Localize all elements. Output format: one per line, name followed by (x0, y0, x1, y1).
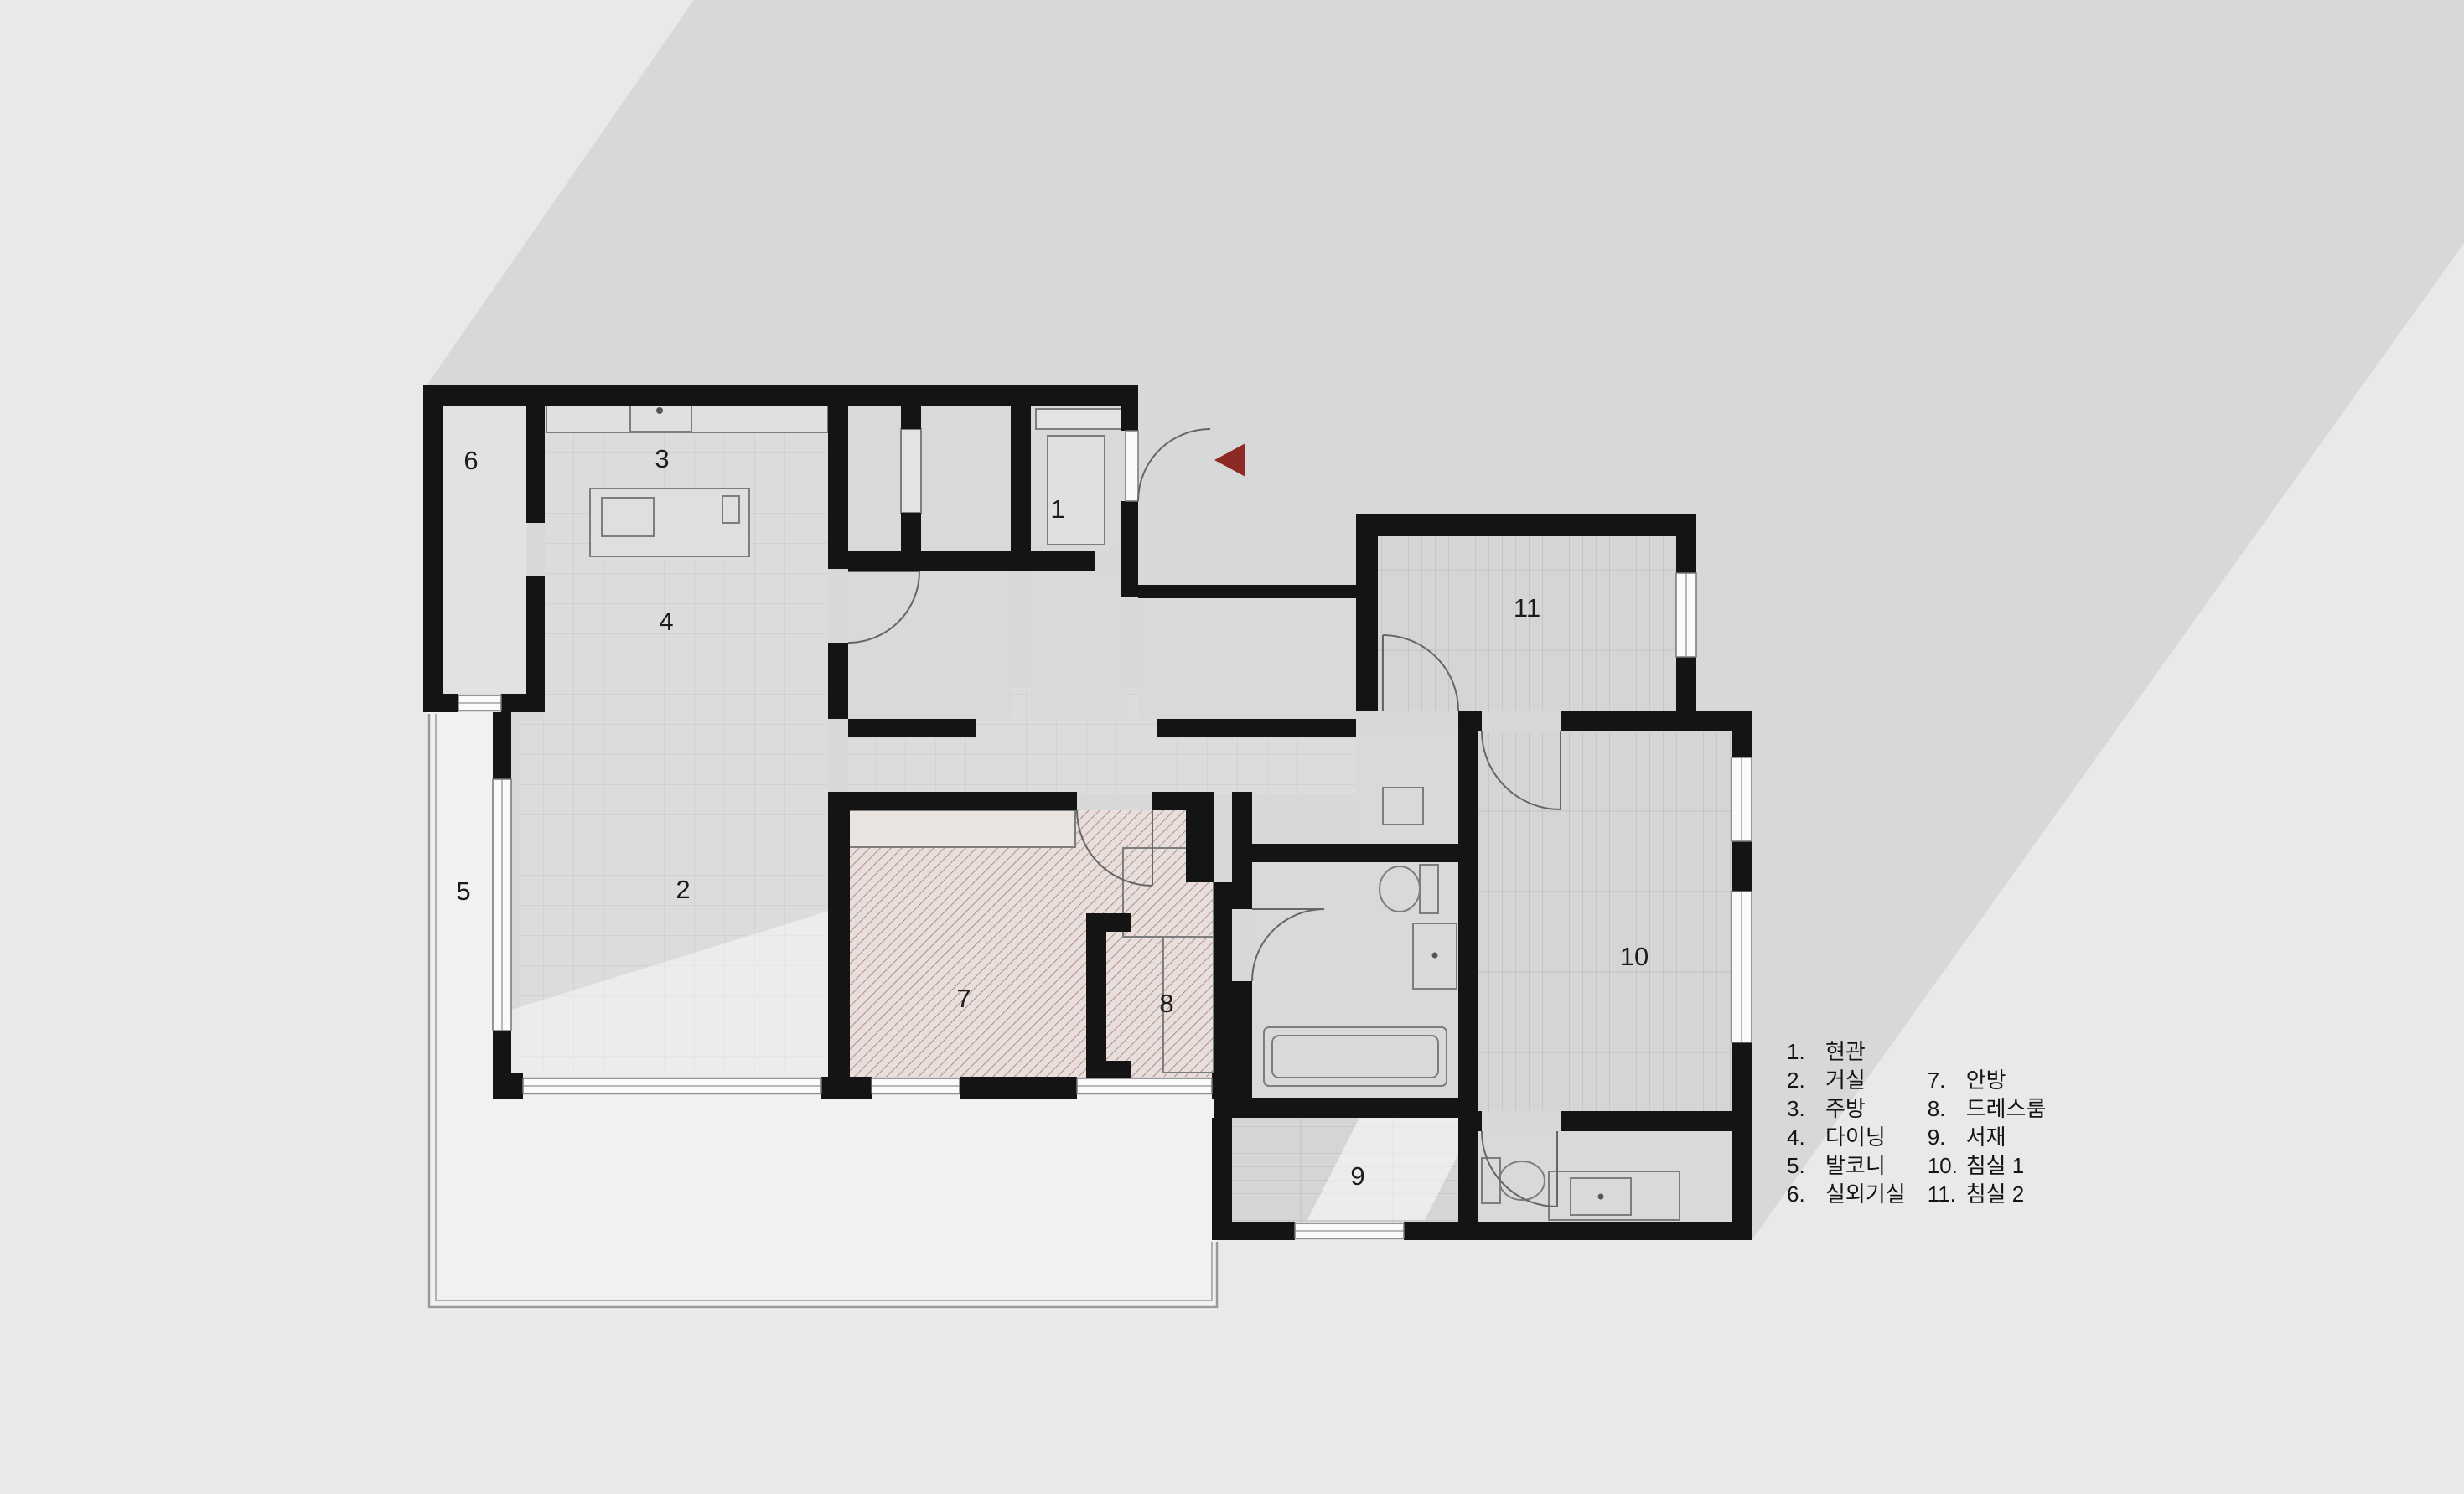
room-3-floor (545, 432, 828, 719)
room-label-7: 7 (956, 984, 971, 1013)
room-label-2: 2 (676, 875, 690, 904)
vanity-1-faucet (1432, 953, 1438, 959)
floor-plan-page: 1234567891011 1.현관2.거실3.주방4.다이닝5.발코니6.실외… (0, 0, 2464, 1494)
legend-item: 2.거실 (1787, 1066, 1906, 1094)
wall (1458, 711, 1482, 731)
legend-item-number: 1. (1787, 1037, 1825, 1066)
room-7-8-floor-hatched (848, 810, 1214, 1077)
wall (526, 576, 545, 712)
wall (1121, 501, 1138, 523)
wall (1157, 719, 1356, 737)
master-bath-floor (1252, 862, 1458, 1098)
wall (526, 406, 545, 523)
wall (848, 719, 976, 737)
legend-item-number: 7. (1928, 1066, 1966, 1094)
legend-item-number: 2. (1787, 1066, 1825, 1094)
room-label-11: 11 (1514, 593, 1540, 623)
legend-item: 1.현관 (1787, 1037, 1906, 1066)
legend-item-number: 5. (1787, 1151, 1825, 1180)
vanity-2-faucet (1598, 1194, 1604, 1200)
wall-shaft (1186, 792, 1214, 882)
room-label-6: 6 (463, 446, 478, 475)
wall (501, 694, 545, 712)
utility-niche (901, 429, 921, 513)
wall (1356, 514, 1696, 536)
wall (1458, 1111, 1482, 1131)
wall (828, 643, 848, 719)
wall (1561, 1111, 1752, 1131)
wall (1121, 523, 1138, 597)
legend-item: 10.침실 1 (1928, 1151, 2047, 1180)
legend-item-number: 9. (1928, 1123, 1966, 1151)
wall (423, 385, 443, 712)
wall (1252, 844, 1458, 862)
wall (1458, 731, 1478, 1222)
room-11-floor (1378, 536, 1676, 711)
legend-item-label: 거실 (1825, 1066, 1866, 1094)
wall (1232, 1098, 1458, 1118)
legend-item-label: 발코니 (1825, 1151, 1886, 1180)
wall (1732, 731, 1752, 757)
legend-item-label: 드레스룸 (1966, 1094, 2047, 1123)
legend-item: 3.주방 (1787, 1094, 1906, 1123)
wall (1561, 711, 1752, 731)
entry-hall-floor (1031, 571, 1127, 719)
room-label-1: 1 (1050, 494, 1064, 524)
wall (1232, 792, 1252, 909)
legend-column-1: 1.현관2.거실3.주방4.다이닝5.발코니6.실외기실 (1787, 1037, 1906, 1208)
legend-item: 11.침실 2 (1928, 1180, 2047, 1208)
wall (901, 513, 921, 551)
wall (1732, 841, 1752, 892)
room-label-5: 5 (456, 876, 470, 906)
room-label-9: 9 (1350, 1161, 1364, 1191)
legend-item-label: 서재 (1966, 1123, 2006, 1151)
wall (423, 694, 458, 712)
legend-item-number: 4. (1787, 1123, 1825, 1151)
legend-item-number: 3. (1787, 1094, 1825, 1123)
room-label-4: 4 (659, 607, 673, 636)
vestibule-floor (1138, 597, 1356, 719)
legend-item-label: 안방 (1966, 1066, 2006, 1094)
wall (1086, 913, 1131, 932)
legend: 1.현관2.거실3.주방4.다이닝5.발코니6.실외기실7.안방8.드레스룸9.… (1787, 1037, 2046, 1208)
wall (1732, 1042, 1752, 1240)
bath-2-floor (1478, 1131, 1732, 1222)
floor-plan-drawing: 1234567891011 (0, 0, 2464, 1494)
room-6-floor (443, 406, 526, 694)
legend-item: 7.안방 (1928, 1066, 2047, 1094)
wall (1356, 514, 1378, 711)
room-10-floor (1478, 731, 1732, 1111)
wall (1676, 657, 1696, 711)
wall-porch (1138, 585, 1361, 598)
legend-item: 5.발코니 (1787, 1151, 1906, 1180)
wall (1031, 551, 1095, 571)
balcony-south (427, 1095, 1217, 1310)
wall (1086, 1061, 1131, 1079)
legend-column-2: 7.안방8.드레스룸9.서재10.침실 111.침실 2 (1928, 1066, 2047, 1208)
wall (1676, 536, 1696, 573)
wall (1011, 385, 1031, 571)
wall (901, 385, 921, 429)
entry-door-leaf (1126, 431, 1138, 501)
wall (423, 385, 1138, 406)
room-label-8: 8 (1159, 989, 1173, 1018)
wall (1152, 792, 1186, 810)
legend-item-label: 실외기실 (1825, 1180, 1906, 1208)
legend-item-label: 현관 (1825, 1037, 1866, 1066)
legend-item-number: 10. (1928, 1151, 1966, 1180)
wall-pier (821, 1077, 872, 1099)
wall (1121, 385, 1138, 431)
wall (1086, 913, 1106, 1079)
wall (1404, 1222, 1752, 1240)
legend-item-number: 6. (1787, 1180, 1825, 1208)
wall-pier (960, 1077, 1077, 1099)
legend-item: 8.드레스룸 (1928, 1094, 2047, 1123)
legend-item: 4.다이닝 (1787, 1123, 1906, 1151)
laundry-floor (848, 571, 1011, 719)
master-bedroom-closet (848, 810, 1075, 847)
entry-closet (1036, 409, 1124, 429)
legend-item-label: 침실 2 (1966, 1180, 2025, 1208)
wall-pier (493, 1031, 511, 1077)
legend-item: 9.서재 (1928, 1123, 2047, 1151)
legend-item-number: 8. (1928, 1094, 1966, 1123)
duct-area-floor (1356, 729, 1458, 844)
wall (828, 792, 850, 1077)
legend-item: 6.실외기실 (1787, 1180, 1906, 1208)
wall (828, 385, 848, 569)
cooktop-knob (656, 407, 663, 414)
room-label-3: 3 (655, 444, 669, 473)
wall-pier (493, 712, 511, 779)
wall (828, 792, 1077, 810)
room-label-10: 10 (1620, 942, 1649, 971)
wall-pier (493, 1073, 523, 1099)
wall (848, 551, 1031, 571)
legend-item-number: 11. (1928, 1180, 1966, 1208)
entry-storage (1048, 436, 1105, 545)
legend-item-label: 다이닝 (1825, 1123, 1886, 1151)
legend-item-label: 주방 (1825, 1094, 1866, 1123)
wall (1214, 882, 1232, 1240)
wall (1232, 981, 1252, 1098)
legend-item-label: 침실 1 (1966, 1151, 2025, 1180)
utility-room-floor (848, 385, 1011, 551)
